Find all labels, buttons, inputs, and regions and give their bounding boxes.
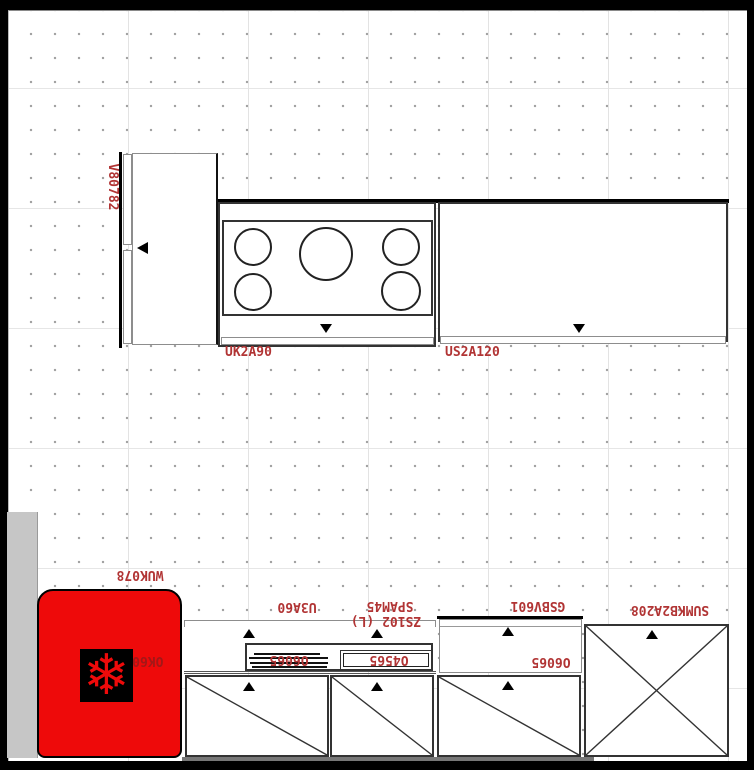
burner-top-left <box>234 228 272 266</box>
sink-bowl-label: O4565 <box>359 652 419 666</box>
burner-center-large <box>299 227 353 281</box>
tall-right-cabinet-label: SUMKB2A208 <box>605 602 735 616</box>
upper-right-cabinet-label: GSBV601 <box>493 598 583 612</box>
arrow-up-icon <box>243 629 255 638</box>
fridge-label: WUK078 <box>100 567 180 581</box>
wide-cabinet[interactable] <box>438 202 728 342</box>
wide-cabinet-label: US2A120 <box>445 346 500 360</box>
tall-cabinet-side-strip-bottom <box>123 250 132 344</box>
tall-cabinet-side-strip-top <box>123 154 132 245</box>
hob-cabinet-label: UK2A90 <box>225 346 272 360</box>
counter-front-edge <box>184 671 436 674</box>
counter-right-label: O6065 <box>521 654 581 668</box>
arrow-up-icon <box>502 627 514 636</box>
upper-right-cabinet-top-strip <box>440 620 581 627</box>
arrow-up-icon <box>502 681 514 690</box>
snowflake-icon: ❄ <box>83 649 130 702</box>
freezer-compartment: ❄ <box>80 649 133 702</box>
wide-cabinet-plinth <box>440 336 726 344</box>
hood-label: SPAM45 <box>350 598 430 612</box>
wall-segment <box>7 512 38 758</box>
arrow-up-icon <box>371 629 383 638</box>
burner-bottom-left <box>234 273 272 311</box>
arrow-up-icon <box>371 682 383 691</box>
burner-top-right <box>382 228 420 266</box>
tall-cabinet-label: V80782 <box>105 152 119 222</box>
sink-drainer-label: O6065 <box>259 652 319 666</box>
arrow-down-icon <box>573 324 585 333</box>
arrow-left-icon <box>137 242 148 254</box>
arrow-up-icon <box>646 630 658 639</box>
burner-bottom-right <box>381 271 421 311</box>
hob-cabinet-plinth <box>221 337 434 345</box>
sink-cabinet-label: ZS102 (L) <box>336 613 436 627</box>
arrow-up-icon <box>243 682 255 691</box>
wall-cabinet-small-label: U3A60 <box>257 599 337 613</box>
plinth-shadow <box>182 757 594 761</box>
tall-right-cabinet[interactable] <box>584 624 729 757</box>
arrow-down-icon <box>320 324 332 333</box>
kitchen-planner-window: V80782 UK2A90 US2A120 OK6028 ❄ WUK078 O6… <box>0 0 754 770</box>
base-cabinet-1[interactable] <box>185 675 329 757</box>
